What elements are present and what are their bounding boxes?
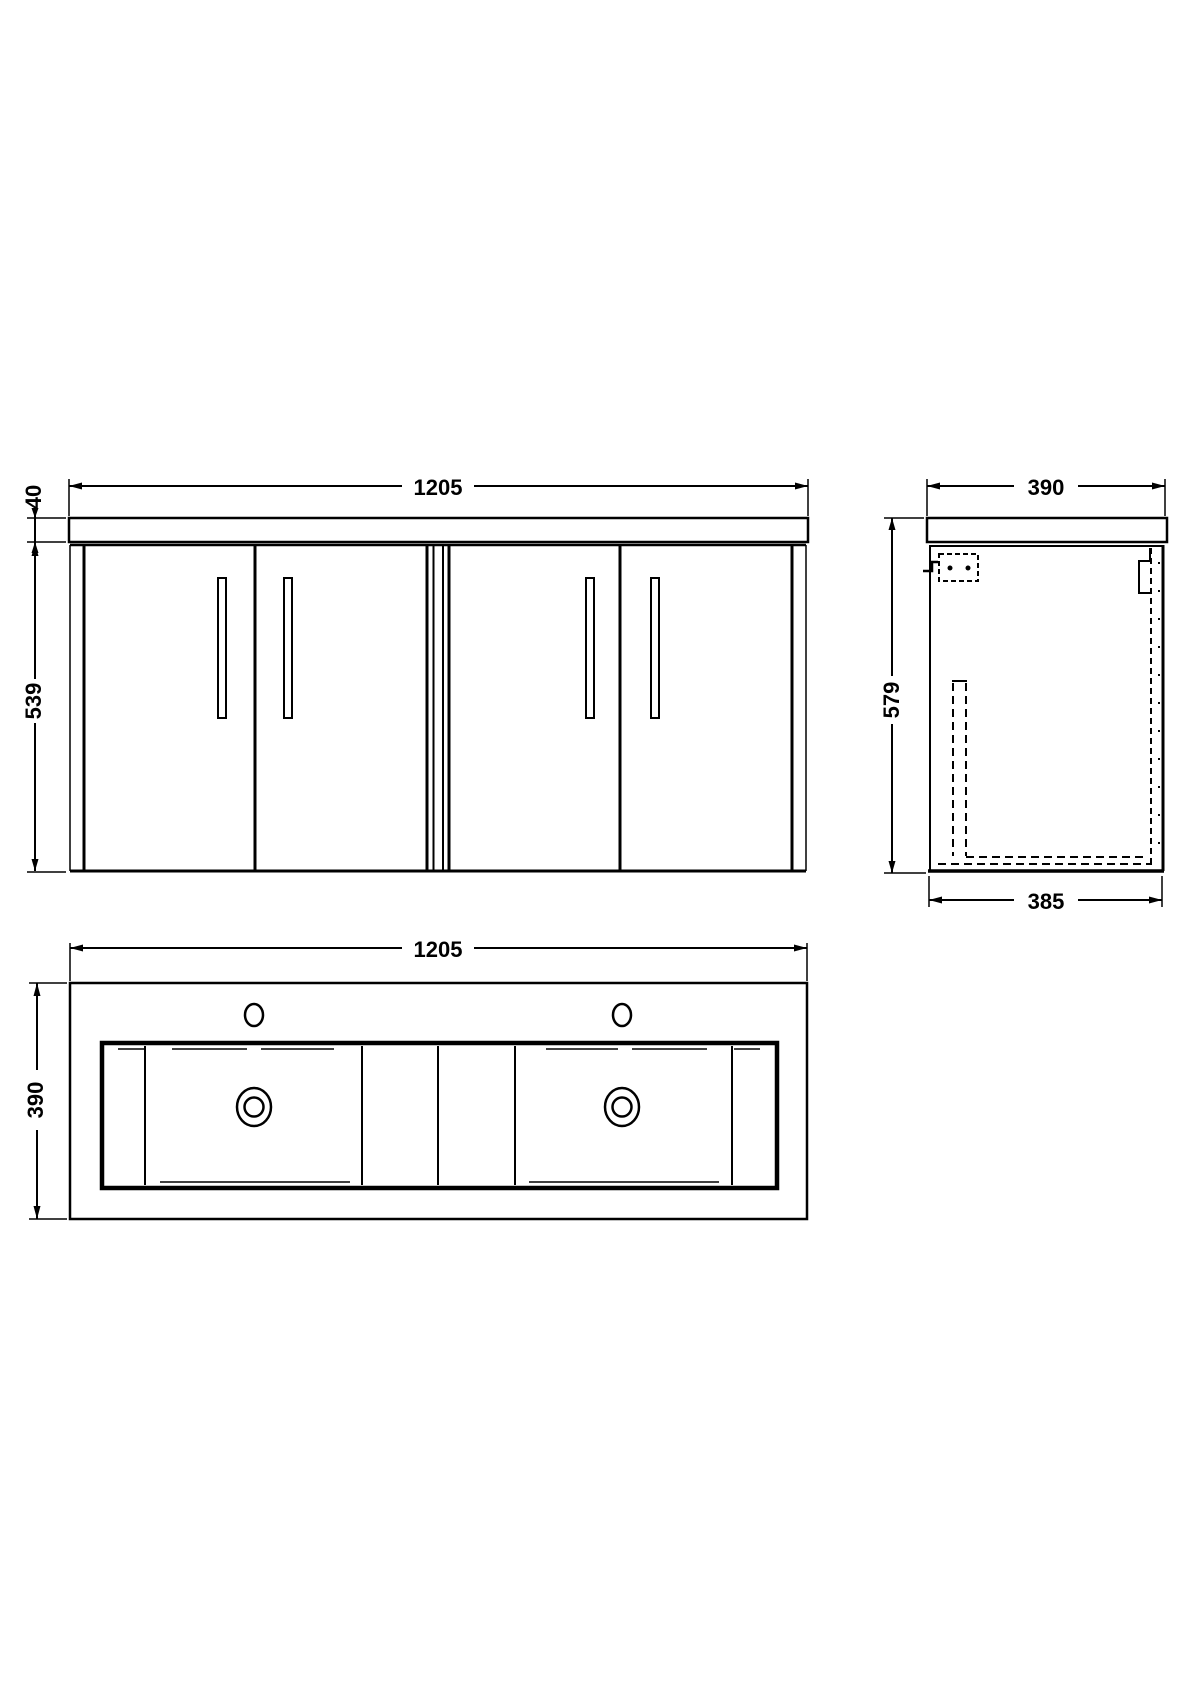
side-height-label: 579 <box>879 682 904 719</box>
arrowhead <box>795 483 808 490</box>
door1-handle <box>218 578 226 718</box>
front-width-dimension: 1205 <box>69 475 808 516</box>
front-cabinet <box>70 545 806 871</box>
arrowhead <box>1152 483 1165 490</box>
bracket-hidden-outline <box>939 554 978 581</box>
arrowhead <box>794 945 807 952</box>
front-view: 1205 40 539 <box>21 475 808 872</box>
plan-width-label: 1205 <box>414 937 463 962</box>
front-cabinet-height-label: 539 <box>21 683 46 720</box>
technical-drawing-page: 1205 40 539 <box>0 0 1200 1698</box>
hinge-plate <box>1139 548 1150 593</box>
arrowhead <box>70 945 83 952</box>
arrowhead <box>32 859 39 871</box>
arrowhead <box>69 483 82 490</box>
front-worktop <box>69 518 808 542</box>
internal-hidden-outline <box>938 681 1152 864</box>
plan-depth-dimension: 390 <box>23 983 67 1219</box>
front-worktop-thickness-label: 40 <box>21 485 46 509</box>
arrowhead <box>889 518 896 530</box>
door2-handle <box>284 578 292 718</box>
bracket-screw-hole <box>966 566 971 571</box>
side-cabinet <box>928 545 1164 871</box>
plan-view: 1205 390 <box>23 937 807 1219</box>
front-worktop-thickness-dimension: 40 <box>21 485 66 556</box>
side-depth-dimension: 390 <box>927 475 1165 516</box>
side-door-detail <box>1139 548 1159 866</box>
wall-bracket <box>923 554 978 581</box>
front-cabinet-height-dimension: 539 <box>21 544 66 872</box>
front-width-label: 1205 <box>414 475 463 500</box>
plan-width-dimension: 1205 <box>70 937 807 981</box>
arrowhead <box>34 1206 41 1219</box>
arrowhead <box>34 983 41 996</box>
arrowhead <box>1149 897 1162 904</box>
arrowhead <box>927 483 940 490</box>
side-cabinet-depth-label: 385 <box>1028 889 1065 914</box>
plan-depth-label: 390 <box>23 1082 48 1119</box>
side-depth-label: 390 <box>1028 475 1065 500</box>
side-cabinet-depth-dimension: 385 <box>929 876 1162 914</box>
side-worktop <box>927 518 1167 542</box>
side-height-dimension: 579 <box>879 518 926 873</box>
bracket-screw-hole <box>948 566 953 571</box>
vanity-unit-technical-drawing: 1205 40 539 <box>0 0 1200 1698</box>
arrowhead <box>889 861 896 873</box>
door4-handle <box>651 578 659 718</box>
side-view: 390 579 <box>879 475 1167 914</box>
arrowhead <box>929 897 942 904</box>
door3-handle <box>586 578 594 718</box>
